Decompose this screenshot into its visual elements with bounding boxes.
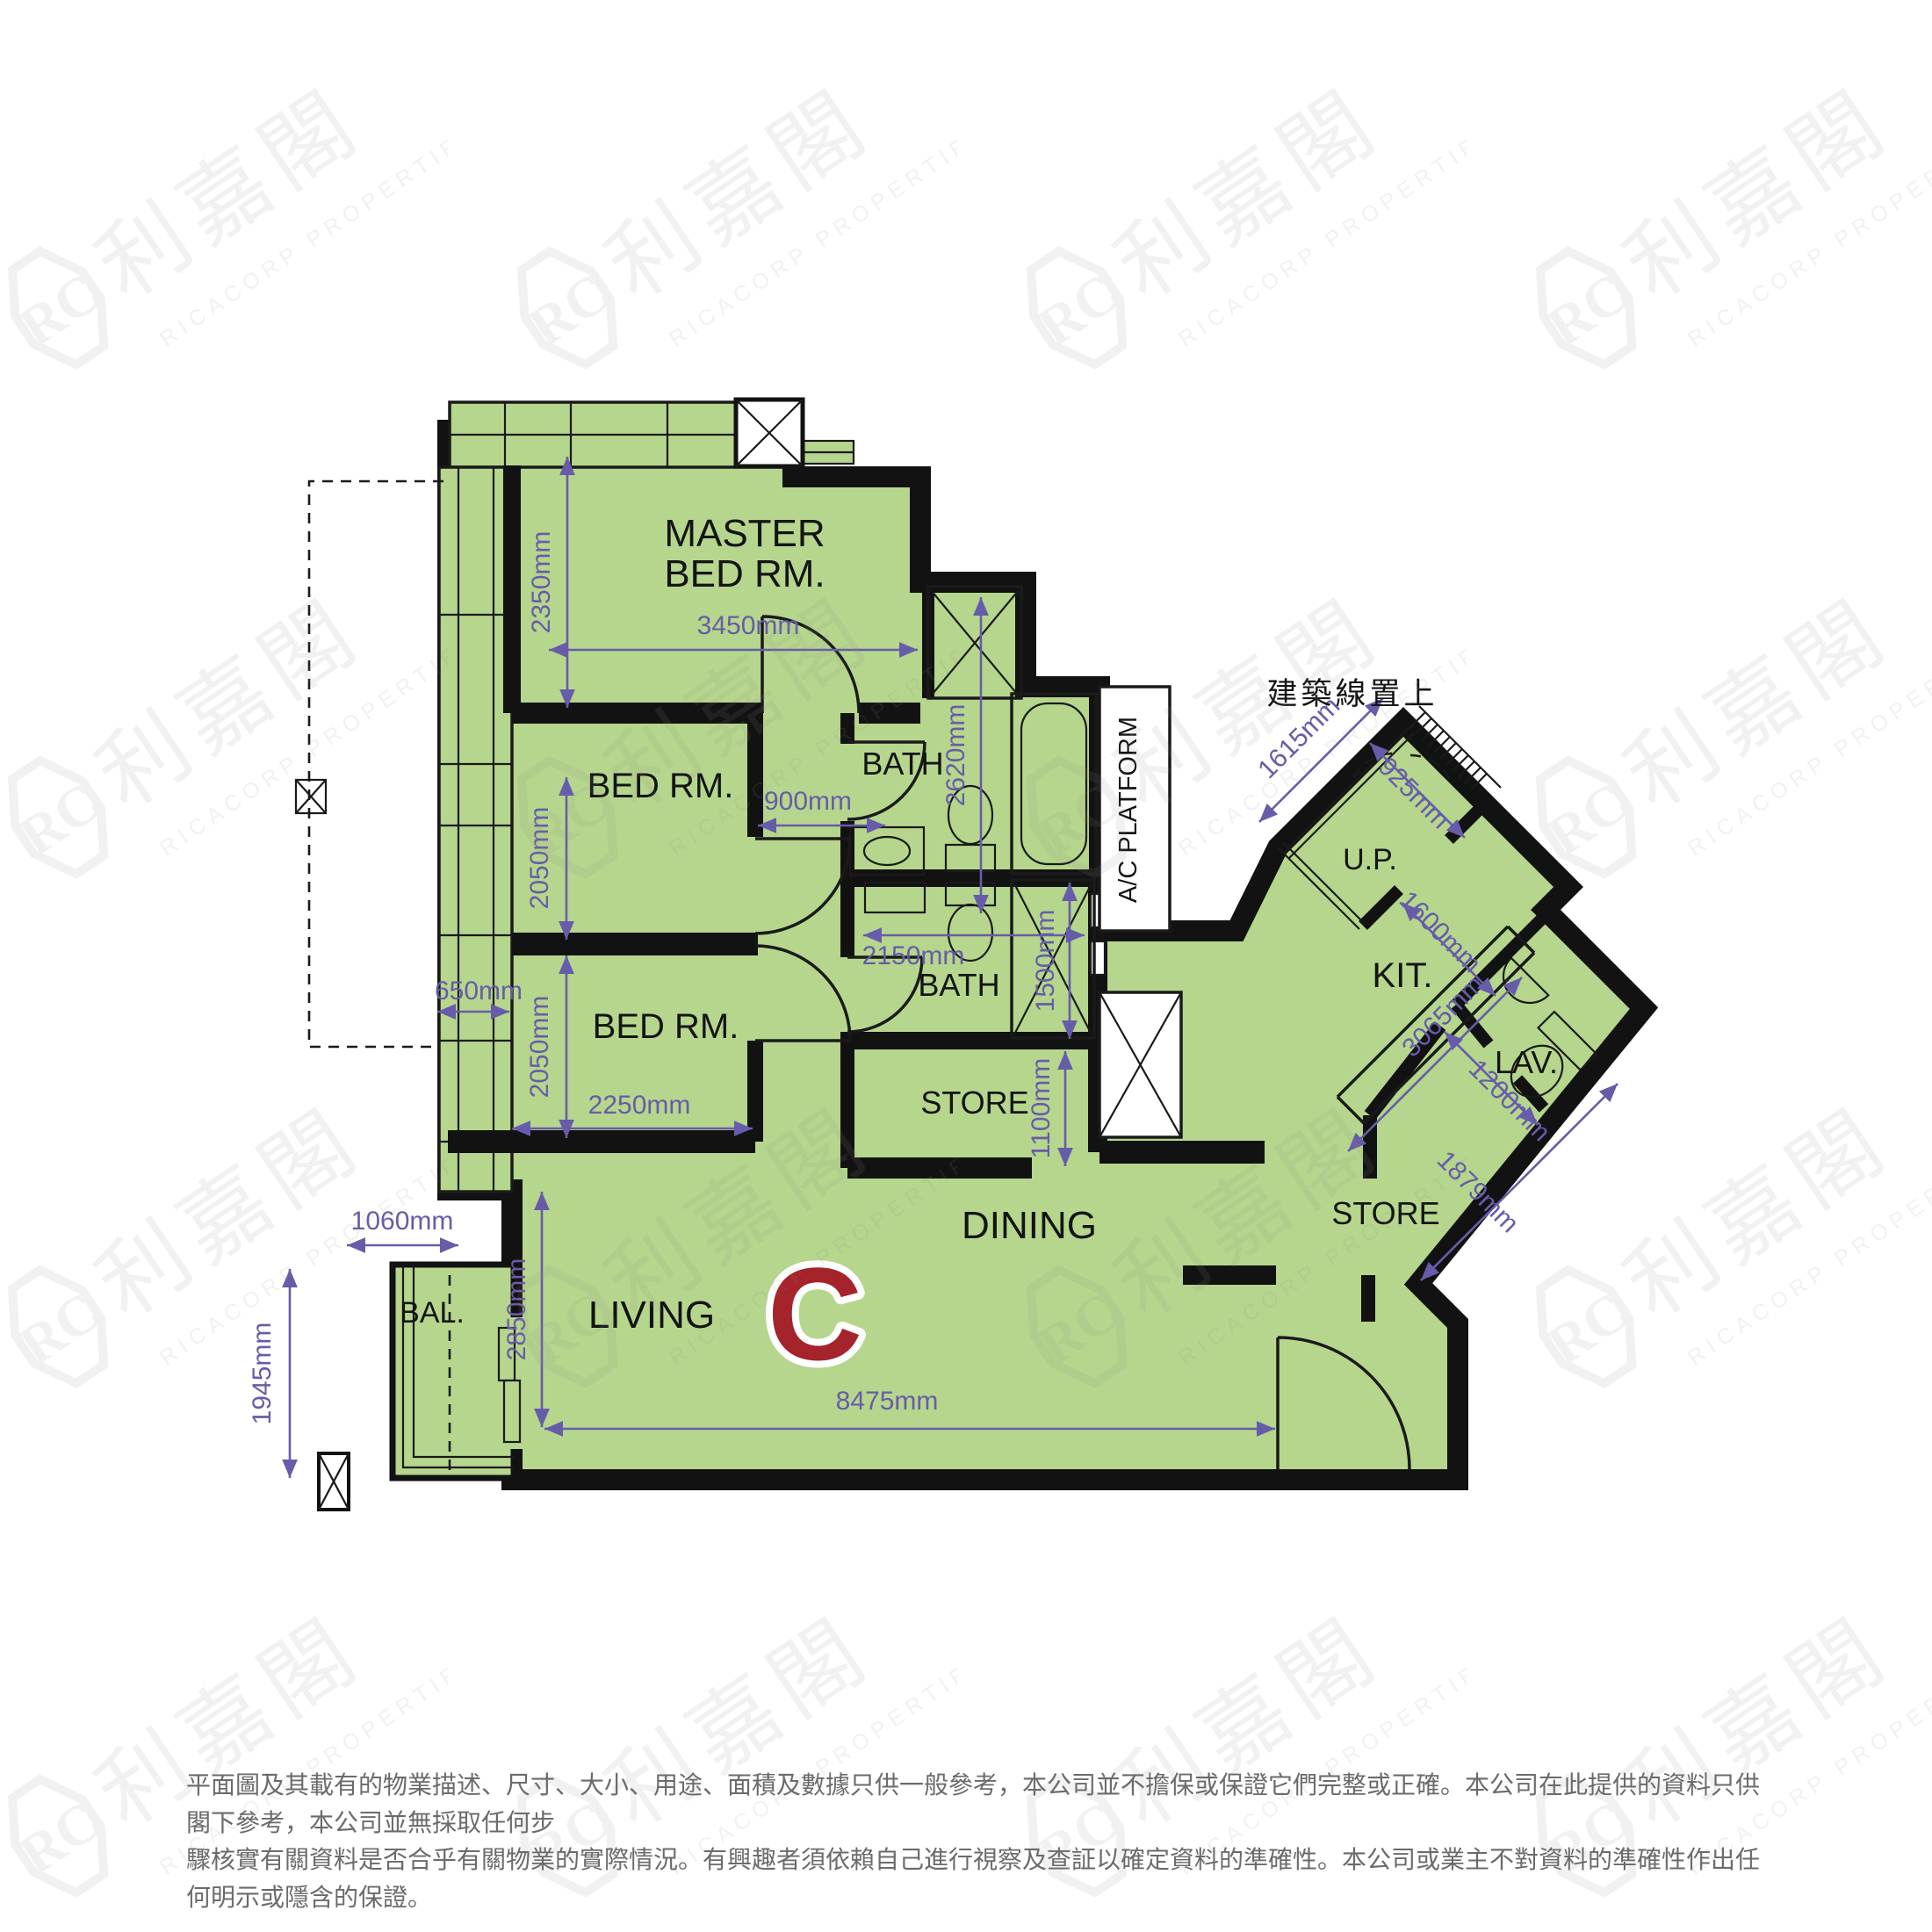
building-lines	[309, 481, 443, 1047]
room-label-dining: DINING	[962, 1204, 1097, 1247]
floor-plan-page: 2350mm 3450mm 900mm 2050mm 650mm 2050mm …	[0, 0, 1932, 1932]
room-label-store2: STORE	[1331, 1195, 1439, 1231]
unit-label: C	[768, 1240, 862, 1388]
room-label-balcony: BAL.	[400, 1296, 465, 1330]
room-label-utility: U.P.	[1343, 843, 1397, 876]
room-label-master-2: BED RM.	[664, 552, 825, 595]
disclaimer-zh-line1: 平面圖及其載有的物業描述、尺寸、大小、用途、面積及數據只供一般參考，本公司並不擔…	[186, 1767, 1767, 1842]
dim-label: 2620mm	[941, 704, 970, 807]
dim-label: 1060mm	[351, 1207, 454, 1236]
dim-label: 1945mm	[248, 1323, 277, 1425]
dim-label: 2850mm	[502, 1258, 531, 1361]
dim-label: 1500mm	[1031, 910, 1060, 1013]
floor-plan-canvas: 2350mm 3450mm 900mm 2050mm 650mm 2050mm …	[0, 0, 1932, 1932]
column-icon	[736, 400, 803, 466]
room-label-ac-platform: A/C PLATFORM	[1114, 717, 1143, 903]
disclaimer-en-line1: Floor plans and the description, measure…	[186, 1928, 1767, 1932]
dim-label: 2050mm	[525, 996, 554, 1099]
room-label-bed1: BED RM.	[588, 767, 734, 805]
room-label-bed2: BED RM.	[593, 1007, 739, 1046]
room-label-master-1: MASTER	[664, 512, 825, 555]
dim-label: 2350mm	[527, 531, 556, 634]
disclaimer-block: 平面圖及其載有的物業描述、尺寸、大小、用途、面積及數據只供一般參考，本公司並不擔…	[186, 1767, 1767, 1932]
building-line-note: 建築線置上	[1266, 677, 1438, 711]
room-label-store1: STORE	[920, 1085, 1028, 1121]
dim-label: 2050mm	[525, 807, 554, 910]
room-label-bath2: BATH	[918, 967, 999, 1003]
disclaimer-zh-line2: 驟核實有關資料是否合乎有關物業的實際情況。有興趣者須依賴自己進行視察及查証以確定…	[186, 1842, 1767, 1916]
column-icon	[319, 1453, 349, 1510]
room-label-lavatory: LAV.	[1495, 1044, 1558, 1080]
dim-label: 650mm	[435, 977, 523, 1006]
dim-label: 1100mm	[1027, 1058, 1056, 1159]
column-icon	[296, 780, 326, 813]
room-label-living: LIVING	[588, 1294, 715, 1337]
light-well	[1099, 992, 1181, 1137]
dim-label: 3450mm	[697, 611, 800, 640]
room-label-bath1: BATH	[861, 746, 943, 782]
dim-label: 900mm	[764, 787, 852, 816]
left-window-band	[439, 467, 512, 1192]
dim-label: 8475mm	[836, 1387, 939, 1416]
room-label-kitchen: KIT.	[1373, 956, 1433, 995]
dim-label: 2250mm	[588, 1091, 691, 1120]
